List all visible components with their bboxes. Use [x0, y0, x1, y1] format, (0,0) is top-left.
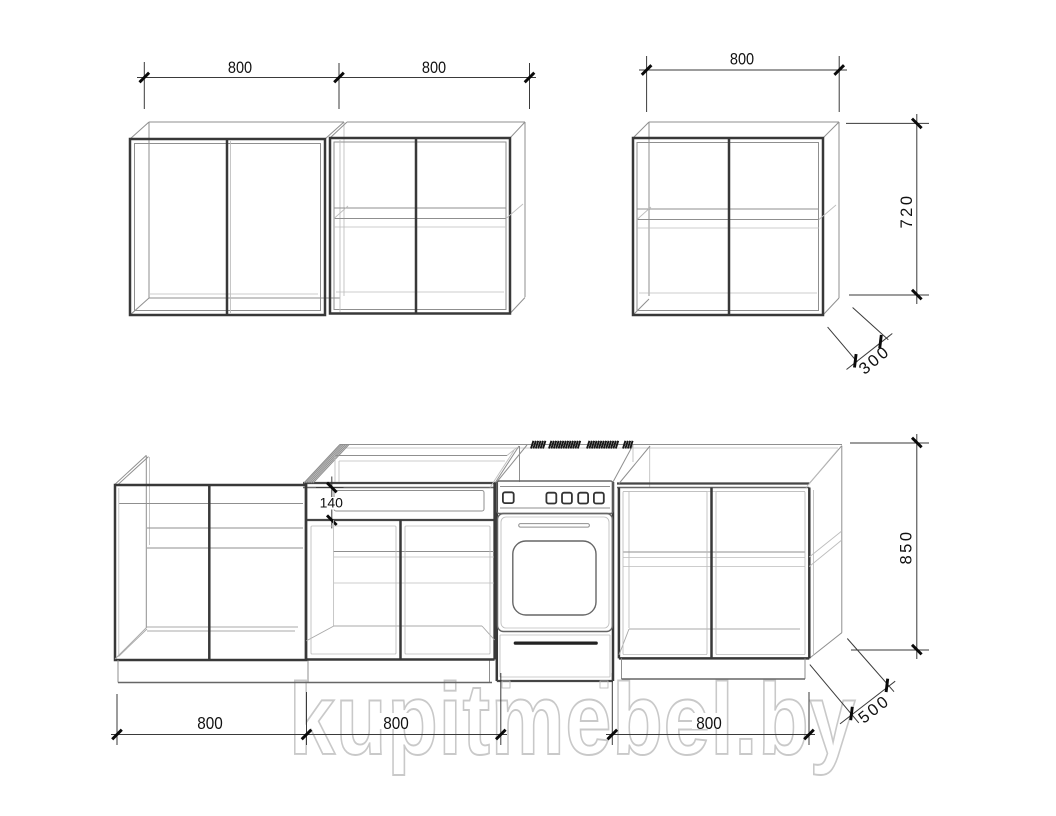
- svg-text:800: 800: [197, 713, 223, 733]
- svg-text:800: 800: [696, 713, 722, 733]
- svg-text:720: 720: [898, 193, 916, 228]
- svg-text:800: 800: [422, 59, 447, 77]
- svg-text:800: 800: [383, 713, 409, 733]
- svg-text:800: 800: [228, 59, 253, 77]
- svg-text:140: 140: [320, 495, 344, 511]
- svg-text:850: 850: [898, 529, 916, 564]
- svg-text:800: 800: [730, 51, 755, 69]
